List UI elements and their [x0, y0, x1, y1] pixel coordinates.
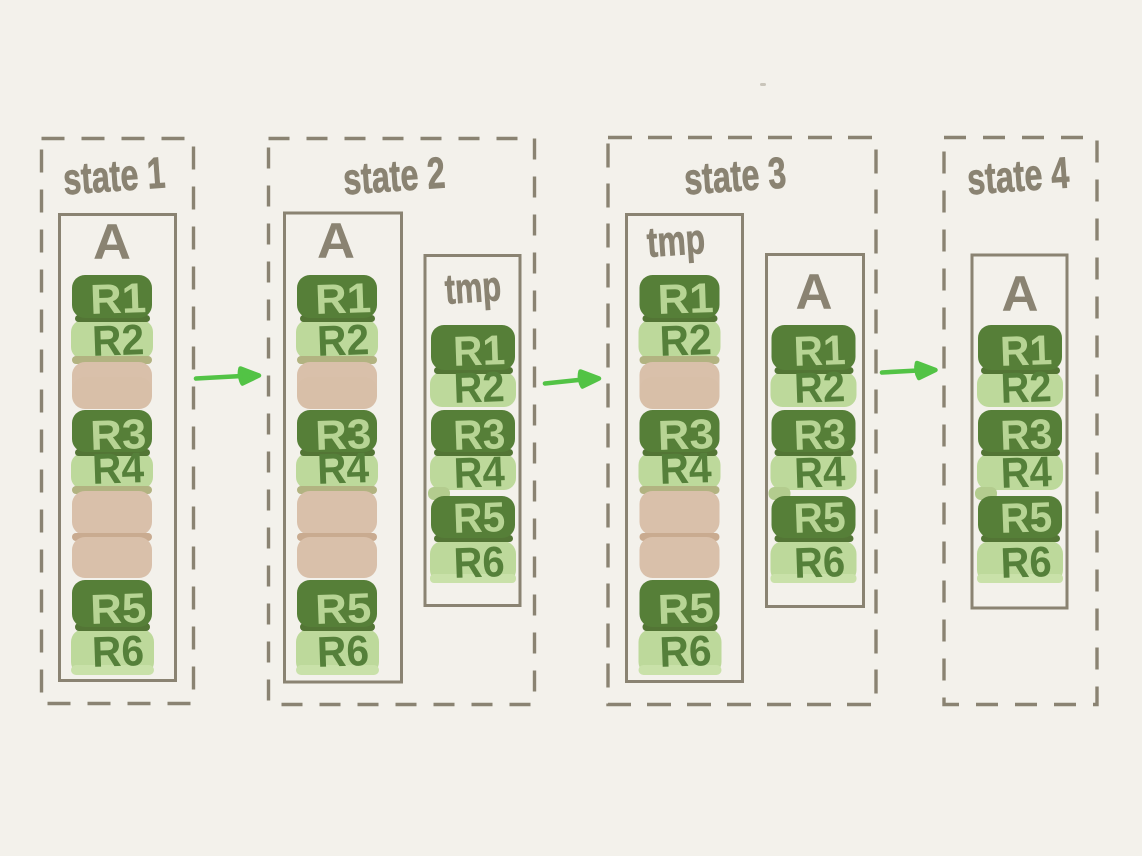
svg-text:state 3: state 3 — [683, 148, 788, 204]
svg-text:A: A — [1002, 266, 1039, 322]
svg-text:A: A — [796, 264, 833, 320]
svg-text:A: A — [93, 214, 131, 270]
svg-text:state 4: state 4 — [966, 148, 1072, 204]
svg-text:state 2: state 2 — [342, 148, 447, 204]
svg-text:A: A — [317, 213, 355, 269]
svg-text:tmp: tmp — [443, 262, 502, 313]
svg-text:tmp: tmp — [645, 215, 706, 266]
svg-text:state 1: state 1 — [62, 148, 167, 204]
